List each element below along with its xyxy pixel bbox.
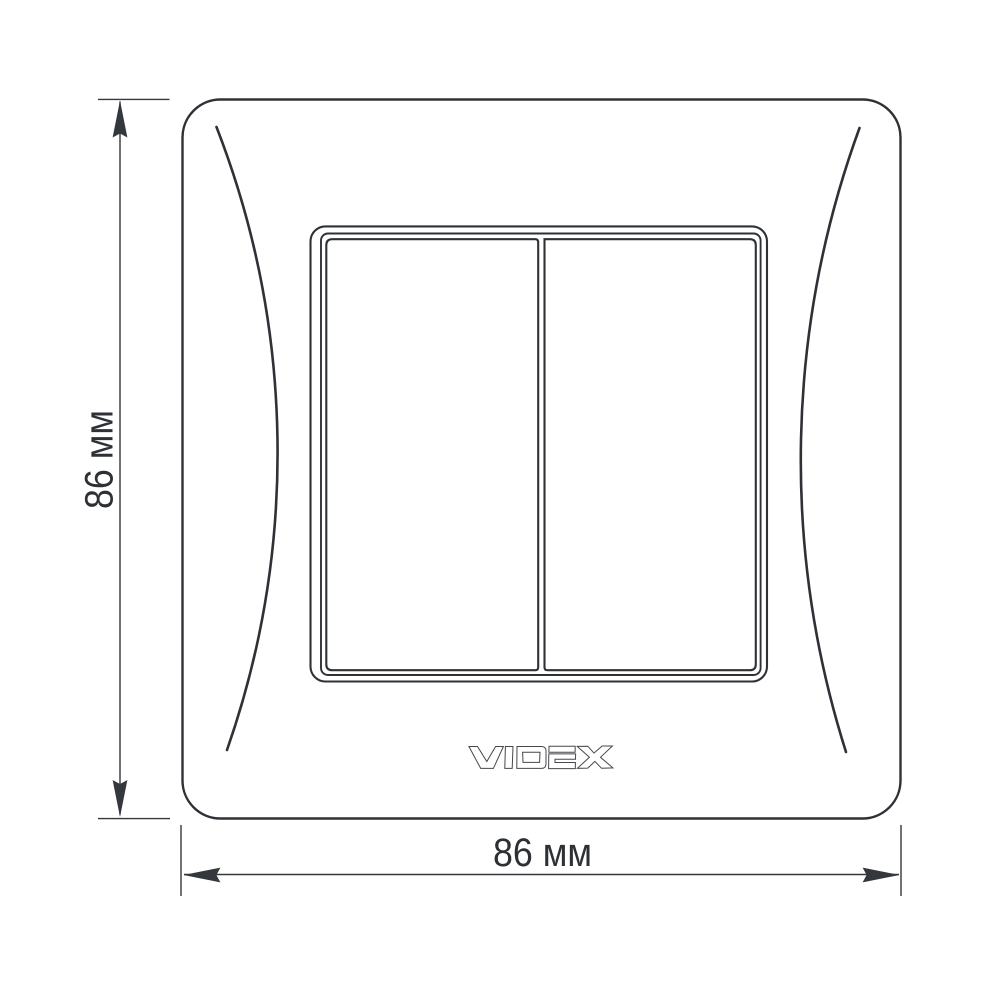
svg-text:86 мм: 86 мм	[493, 831, 592, 875]
svg-text:86 мм: 86 мм	[78, 410, 122, 509]
